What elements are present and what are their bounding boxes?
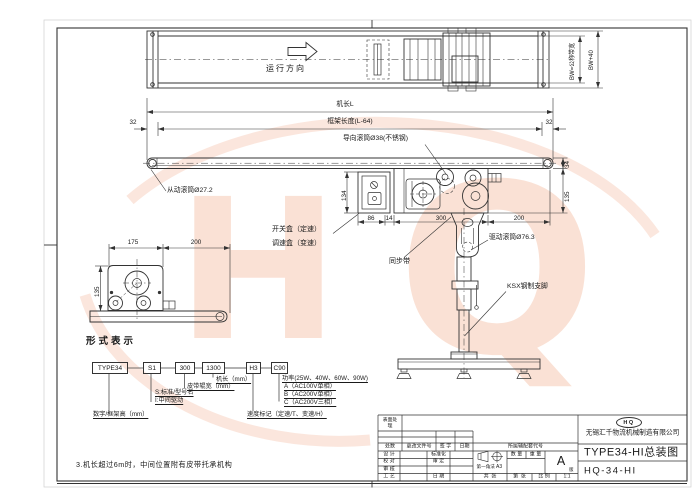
weight-label: 重 量	[530, 452, 541, 457]
dim-86: 86	[367, 216, 374, 222]
top-view	[145, 28, 551, 91]
driven-roller-label: 从动滚筒Ø27.2	[167, 188, 213, 195]
timing-belt-label: 同步带	[389, 258, 410, 265]
type-middle-drive-label: I:中间驱动	[155, 398, 183, 404]
run-direction-label: 运行方向	[266, 65, 306, 73]
version-suffix: 版	[569, 468, 574, 473]
dim-300: 300	[436, 216, 447, 222]
type-frame-height-label: 数字/框架高（mm）	[93, 412, 148, 418]
guide-roller-label: 导向滚筒Ø38(不锈钢)	[343, 136, 408, 143]
col-doc-label: 更改文件号	[406, 445, 431, 450]
qty-label: 数 量	[511, 452, 522, 457]
type-power-c-label: C（AC200V三相）	[284, 400, 336, 406]
type-box-power: C90	[271, 362, 288, 374]
support-leg-label: KSX钢制支脚	[507, 284, 548, 291]
frame-length-dim: 框架长度(L-64)	[327, 119, 372, 126]
type-belt-width-label: 皮带辊宽（mm）	[187, 384, 234, 390]
review-label: 审 核	[383, 467, 394, 472]
dim-134: 134	[342, 190, 348, 201]
company-name: 无锡汇千物流机械制造有限公司	[586, 431, 680, 438]
engineering-drawing-sheet: H Q	[0, 0, 700, 495]
type-box-width: 300	[175, 362, 195, 374]
drawing-title: TYPE34-HI总装图	[584, 447, 679, 458]
design-label: 设 计	[383, 452, 394, 457]
standardization-label: 标准化	[431, 452, 446, 457]
approve-label: 审 定	[433, 460, 444, 465]
process-label: 工 艺	[383, 475, 394, 480]
company-logo: HQ	[616, 417, 642, 428]
type-box-standard: S1	[143, 362, 161, 374]
type-standard-label: S:标准/型号名	[155, 390, 194, 396]
col-sign-label: 签 字	[440, 445, 451, 450]
dim-32-left: 32	[129, 120, 136, 126]
drawing-geometry: H Q	[0, 0, 700, 495]
switch-box-label: 开关盒（定速）	[272, 226, 321, 233]
surface-treatment-label: 表面处理	[381, 418, 399, 430]
dim-34: 34	[565, 161, 571, 168]
date-label: 日 期	[433, 475, 444, 480]
page-no-label: 第 张	[513, 475, 526, 480]
type-power-b-label: B（AC200V单相）	[284, 392, 336, 398]
watermark-letter-q: Q	[397, 135, 597, 408]
type-designation-heading: 形式表示	[86, 337, 136, 347]
projection-label: 第一角法	[477, 465, 495, 470]
scale-value: 1:1	[564, 475, 571, 480]
endview-dim-135: 135	[95, 286, 101, 297]
version-mark: A	[557, 455, 565, 468]
bw-outer-dim: BW+40	[589, 50, 595, 70]
sheet-size-label: A3	[496, 465, 502, 470]
type-box-model: TYPE34	[92, 362, 128, 374]
col-qty-label: 处数	[385, 445, 395, 450]
dim-32-right: 32	[545, 120, 552, 126]
col-date-label: 日期	[459, 445, 469, 450]
drive-roller-label: 驱动滚筒Ø76.3	[489, 235, 535, 242]
endview-dim-200: 200	[191, 240, 202, 246]
bw-inner-dim: BW=公称带宽	[570, 43, 576, 80]
drawing-note: 3.机长超过6m时，中间位置附有皮带托承机构	[76, 461, 232, 468]
speed-box-label: 调速盒（变速）	[272, 240, 321, 247]
direction-arrow-icon	[288, 43, 317, 61]
drawing-number: HQ-34-HI	[584, 466, 637, 476]
type-power-a-label: A（AC100V单相）	[284, 384, 336, 390]
total-sheets-label: 共 张	[484, 475, 497, 480]
proof-label: 校 对	[383, 460, 394, 465]
type-box-length: 1300	[202, 362, 225, 374]
type-power-label: 功率(25W、40W、60W、90W)	[282, 376, 368, 382]
endview-dim-175: 175	[128, 240, 139, 246]
type-speed-mark-label: 速度标记（定速/T、变速/H）	[247, 412, 327, 418]
projection-symbol-icon	[478, 451, 503, 463]
machine-length-dim: 机长L	[336, 102, 353, 109]
dim-135: 135	[565, 191, 571, 202]
dim-14: 14	[385, 216, 392, 222]
dim-200: 200	[514, 216, 525, 222]
company-logo-text: HQ	[623, 420, 634, 426]
scale-label: 比 例	[538, 475, 549, 480]
col-assembly-label: 所属辅配套代号	[508, 445, 543, 450]
type-box-speed: H3	[246, 362, 261, 374]
